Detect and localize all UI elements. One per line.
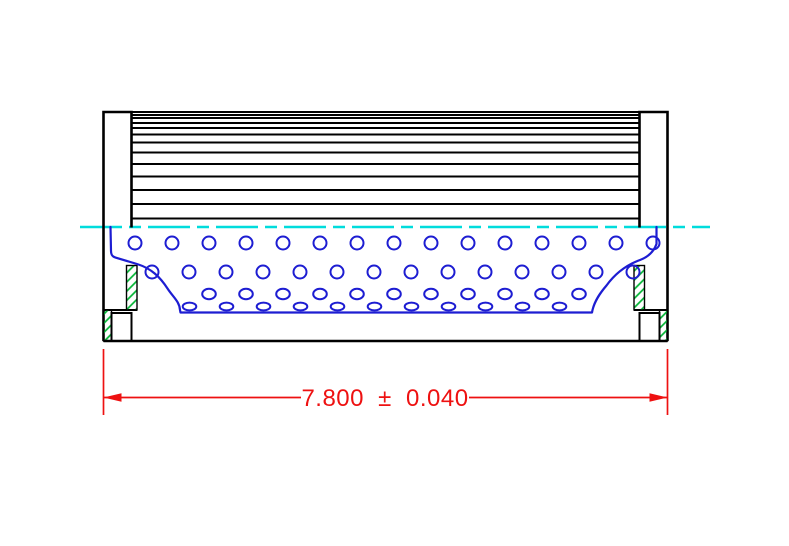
core-hole xyxy=(166,237,179,250)
core-hole xyxy=(479,303,493,311)
core-hole xyxy=(257,266,270,279)
core-hole xyxy=(240,237,253,250)
core-hole xyxy=(368,303,382,311)
core-hole xyxy=(203,237,216,250)
core-hole xyxy=(294,303,308,311)
core-hole xyxy=(388,237,401,250)
core-hole xyxy=(442,266,455,279)
dimension-text: 7.800 ± 0.040 xyxy=(301,385,468,412)
end-cap-right-seam-box xyxy=(640,313,660,341)
core-hole xyxy=(350,289,364,299)
end-cap-right-hatch-foot xyxy=(660,310,668,341)
core-hole xyxy=(331,303,345,311)
core-hole xyxy=(479,266,492,279)
core-hole xyxy=(220,266,233,279)
core-hole xyxy=(572,289,586,299)
core-hole xyxy=(313,289,327,299)
core-hole xyxy=(461,289,475,299)
core-hole xyxy=(314,237,327,250)
filter-element-drawing: 7.800 ± 0.040 xyxy=(0,0,789,546)
core-hole xyxy=(368,266,381,279)
core-hole xyxy=(276,289,290,299)
core-hole xyxy=(387,289,401,299)
core-hole xyxy=(405,266,418,279)
core-hole xyxy=(610,237,623,250)
core-hole xyxy=(257,303,271,311)
core-hole xyxy=(183,303,197,311)
core-hole xyxy=(424,289,438,299)
core-hole xyxy=(553,266,566,279)
core-hole xyxy=(462,237,475,250)
core-hole xyxy=(590,266,603,279)
pleat-lines xyxy=(132,112,640,219)
core-hole xyxy=(442,303,456,311)
core-hole xyxy=(536,237,549,250)
core-hole xyxy=(425,237,438,250)
core-hole xyxy=(294,266,307,279)
core-hole xyxy=(498,289,512,299)
arrowhead-left xyxy=(104,393,122,402)
media-profile-curve xyxy=(111,227,657,313)
core-hole xyxy=(499,237,512,250)
drawing-canvas: 7.800 ± 0.040 xyxy=(0,0,789,546)
end-cap-left-hatch-foot xyxy=(104,310,112,341)
core-hole xyxy=(351,237,364,250)
end-cap-left-seam-box xyxy=(112,313,132,341)
perforated-core xyxy=(111,227,660,313)
core-hole xyxy=(239,289,253,299)
core-hole xyxy=(405,303,419,311)
core-hole xyxy=(331,266,344,279)
core-holes xyxy=(129,237,660,311)
end-cap-left-hatch-wall xyxy=(127,266,138,311)
core-hole xyxy=(183,266,196,279)
core-hole xyxy=(573,237,586,250)
dimension-annotation: 7.800 ± 0.040 xyxy=(104,349,668,415)
core-hole xyxy=(129,237,142,250)
core-hole xyxy=(553,303,567,311)
core-hole xyxy=(516,303,530,311)
core-hole xyxy=(535,289,549,299)
core-hole xyxy=(220,303,234,311)
core-hole xyxy=(202,289,216,299)
arrowhead-right xyxy=(650,393,668,402)
core-hole xyxy=(516,266,529,279)
core-hole xyxy=(277,237,290,250)
